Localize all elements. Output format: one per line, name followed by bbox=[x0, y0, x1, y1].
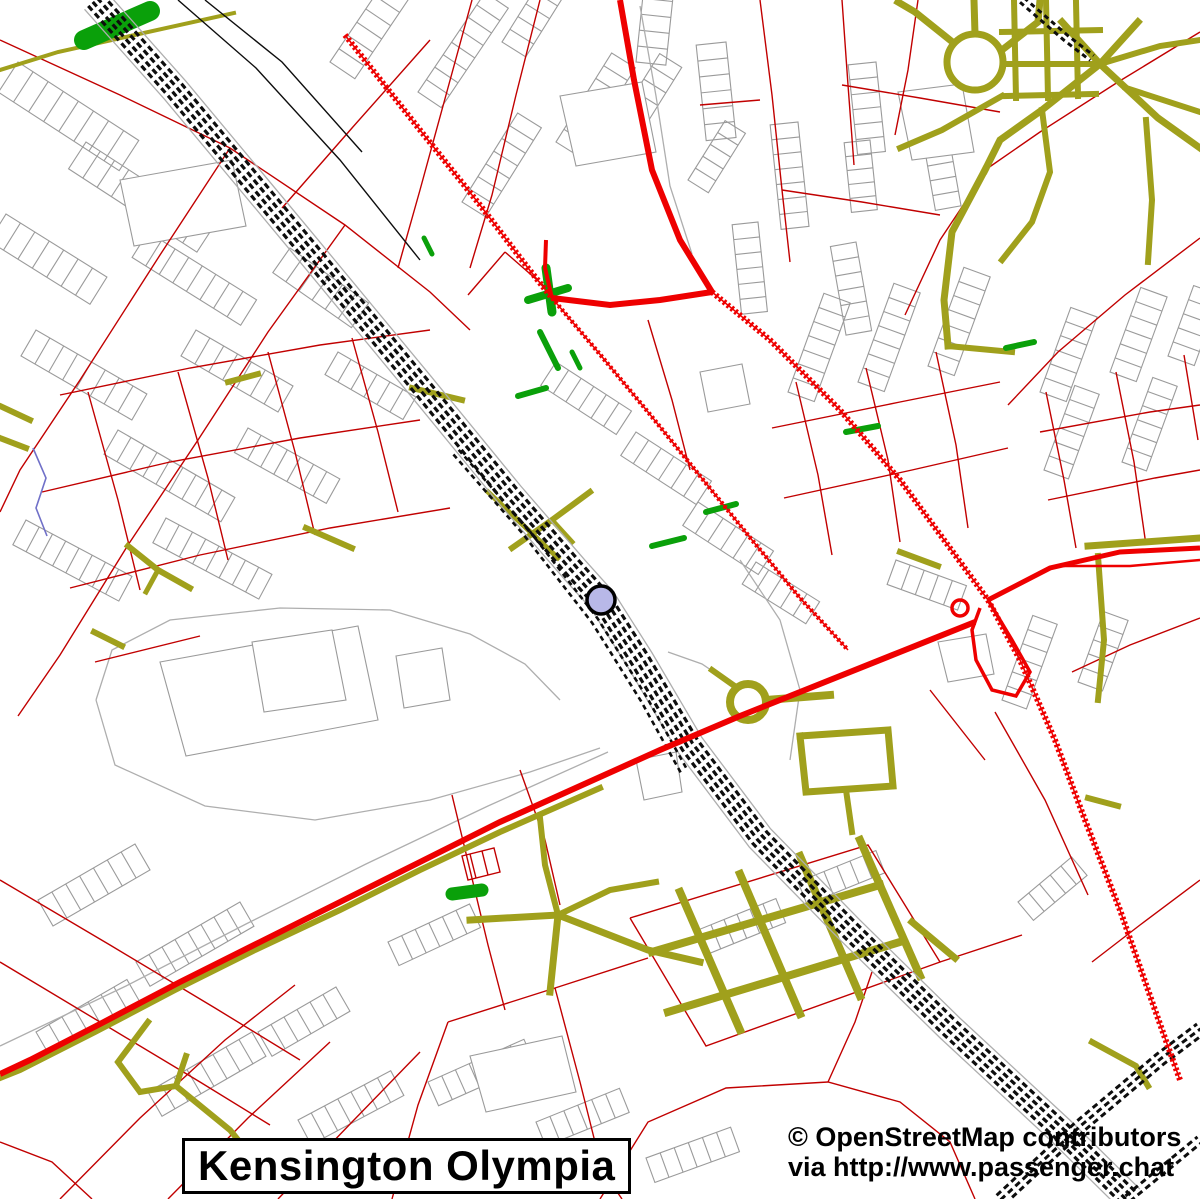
building-terrace-row bbox=[1110, 287, 1167, 381]
building-terrace-row bbox=[13, 520, 132, 601]
building-outline bbox=[898, 84, 974, 160]
building-terrace-row bbox=[1040, 307, 1097, 401]
building-terrace-row bbox=[0, 214, 107, 304]
building-terrace-row bbox=[1122, 377, 1177, 470]
building-terrace-row bbox=[732, 222, 767, 314]
building-terrace-row bbox=[330, 0, 418, 79]
map-title-label: Kensington Olympia bbox=[182, 1138, 631, 1194]
building-terrace-row bbox=[0, 62, 139, 171]
building-terrace-row bbox=[258, 987, 350, 1056]
map-attribution: © OpenStreetMap contributors via http://… bbox=[788, 1122, 1181, 1182]
building-terrace-row bbox=[388, 904, 481, 966]
building-terrace-row bbox=[830, 242, 871, 335]
building-outline bbox=[396, 648, 450, 708]
building-terrace-row bbox=[636, 0, 676, 65]
building-outline bbox=[700, 364, 750, 412]
building-terrace-row bbox=[541, 362, 632, 435]
building-terrace-row bbox=[148, 1032, 266, 1116]
building-terrace-row bbox=[181, 330, 293, 412]
station-marker[interactable] bbox=[587, 586, 615, 614]
building-terrace-row bbox=[646, 1127, 739, 1182]
building-terrace-row bbox=[153, 518, 272, 599]
building-terrace-row bbox=[298, 1071, 404, 1145]
building-terrace-row bbox=[688, 121, 745, 193]
building-terrace-row bbox=[132, 232, 256, 325]
building-terrace-row bbox=[234, 428, 339, 503]
building-terrace-row bbox=[1018, 857, 1087, 920]
building-terrace-row bbox=[696, 42, 736, 141]
building-terrace-row bbox=[418, 0, 508, 108]
building-terrace-row bbox=[683, 502, 774, 575]
attribution-line-2: via http://www.passenger.chat bbox=[788, 1152, 1181, 1182]
building-terrace-row bbox=[1044, 385, 1099, 478]
building-terrace-row bbox=[38, 844, 150, 926]
building-terrace-row bbox=[502, 0, 589, 57]
building-outline bbox=[470, 1036, 576, 1112]
building-outline bbox=[120, 160, 246, 246]
attribution-line-1: © OpenStreetMap contributors bbox=[788, 1122, 1181, 1152]
map-viewport[interactable]: Kensington Olympia © OpenStreetMap contr… bbox=[0, 0, 1200, 1199]
building-terrace-row bbox=[621, 432, 712, 505]
building-outline bbox=[252, 630, 346, 712]
map-extras-layer bbox=[462, 848, 500, 880]
building-terrace-row bbox=[1168, 286, 1200, 366]
map-canvas[interactable] bbox=[0, 0, 1200, 1199]
